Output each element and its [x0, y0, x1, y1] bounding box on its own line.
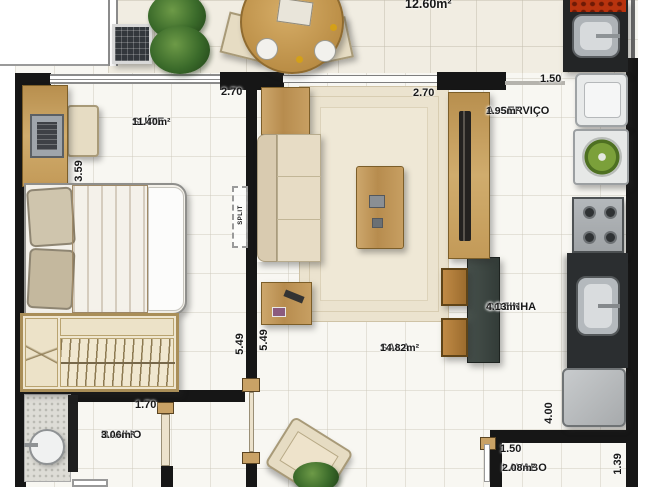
magazine [272, 307, 286, 317]
coffee-table-item-1 [369, 195, 385, 208]
coffee-table-item-2 [372, 218, 383, 228]
sala-plant [293, 462, 339, 487]
grill-icon [570, 0, 626, 12]
monitor-icon [30, 114, 64, 158]
remote-control [283, 290, 304, 304]
shower-head [29, 429, 65, 465]
outside-area-left [0, 66, 15, 487]
dim-cozinha-height: 4.00 [543, 396, 555, 430]
dim-sala-length: 5.49 [258, 323, 270, 357]
lavabo-door-leaf [484, 444, 490, 482]
refrigerator [562, 368, 626, 427]
wall-top-left-stub [15, 73, 51, 85]
bar-stool-1 [441, 268, 468, 306]
washing-machine [573, 129, 629, 185]
building-edge-line [0, 64, 108, 66]
table-decor-2 [330, 24, 337, 31]
pillow-2 [26, 248, 75, 310]
tv-panel [448, 92, 490, 259]
tv-icon [459, 111, 471, 241]
dim-sala-width: 2.70 [413, 87, 434, 99]
gourmet-faucet [596, 34, 620, 38]
laundry-tub-basin [584, 82, 621, 118]
wall-cozinha-lavabo [490, 430, 638, 443]
outside-area-top-left [0, 0, 108, 64]
suite-window [50, 74, 220, 84]
shower-arm [24, 443, 38, 447]
wall-banho-right-lower [161, 466, 173, 487]
banho-door-leaf [161, 414, 170, 466]
plate-right [314, 40, 336, 62]
suite-armchair [67, 105, 99, 157]
burner-3 [583, 231, 596, 244]
closet-top-shelf [60, 318, 174, 336]
suite-bed [24, 183, 187, 315]
plate-left [256, 38, 278, 60]
coffee-table [356, 166, 404, 249]
sofa-side-cabinet [261, 87, 310, 135]
dim-suite-width: 2.70 [221, 86, 242, 98]
table-decor-1 [296, 56, 303, 63]
burner-2 [604, 206, 617, 219]
suite-door-leaf [249, 392, 254, 452]
closet-shelf-section [25, 318, 58, 387]
wall-top-sala-right [437, 72, 506, 90]
balcony-area-label: 12.60m² [405, 0, 452, 11]
bed-blanket [72, 185, 148, 313]
banho-fixture [72, 479, 108, 487]
pillow-1 [26, 186, 76, 247]
sofa-back [257, 134, 277, 262]
gourmet-sink [572, 14, 620, 58]
suite-door-jamb-top [242, 378, 260, 392]
kitchen-faucet [598, 304, 620, 308]
closet-rod [61, 362, 175, 364]
serving-tray [276, 0, 313, 26]
balcony-sliding-door [283, 75, 437, 83]
burner-1 [583, 206, 596, 219]
dim-banho-width: 1.70 [135, 399, 156, 411]
gourmet-counter [563, 0, 628, 72]
sofa-seat [277, 134, 321, 262]
sofa-cushion-line-2 [277, 219, 321, 220]
split-label: SPLIT [238, 198, 244, 232]
shower-partition [68, 395, 78, 472]
outside-area-right [638, 0, 652, 487]
ac-condenser-unit [112, 24, 152, 64]
floor-plan: 12.60m² 2.70 2.70 1.50 3.59 5.49 5.49 1.… [0, 0, 652, 487]
wall-divider-lower [246, 464, 257, 487]
balcony-rail [631, 0, 635, 58]
balcony-plant-bottom [150, 26, 210, 74]
side-table [261, 282, 312, 325]
bar-stool-2 [441, 318, 468, 357]
dim-servico-width: 1.50 [540, 73, 561, 85]
cooktop-stove [572, 197, 624, 253]
banho-door-jamb [157, 402, 174, 414]
burner-4 [604, 231, 617, 244]
monitor-screen [37, 122, 57, 150]
dim-suite-length: 5.49 [234, 327, 246, 361]
sofa [257, 134, 321, 262]
laundry-tub [575, 73, 628, 127]
dim-lavabo-depth: 1.39 [612, 447, 624, 481]
kitchen-sink [576, 276, 620, 336]
washer-door [582, 137, 622, 177]
suite-desk [22, 85, 68, 187]
closet-hanger-section [60, 338, 174, 387]
sofa-cushion-line-1 [277, 176, 321, 177]
dim-suite-depth: 3.59 [73, 154, 85, 188]
closet [20, 313, 179, 392]
suite-door-jamb-bottom [242, 452, 260, 464]
kitchen-counter [567, 253, 628, 368]
bed-sheet [148, 187, 184, 311]
dim-lavabo-width: 1.50 [500, 443, 521, 455]
